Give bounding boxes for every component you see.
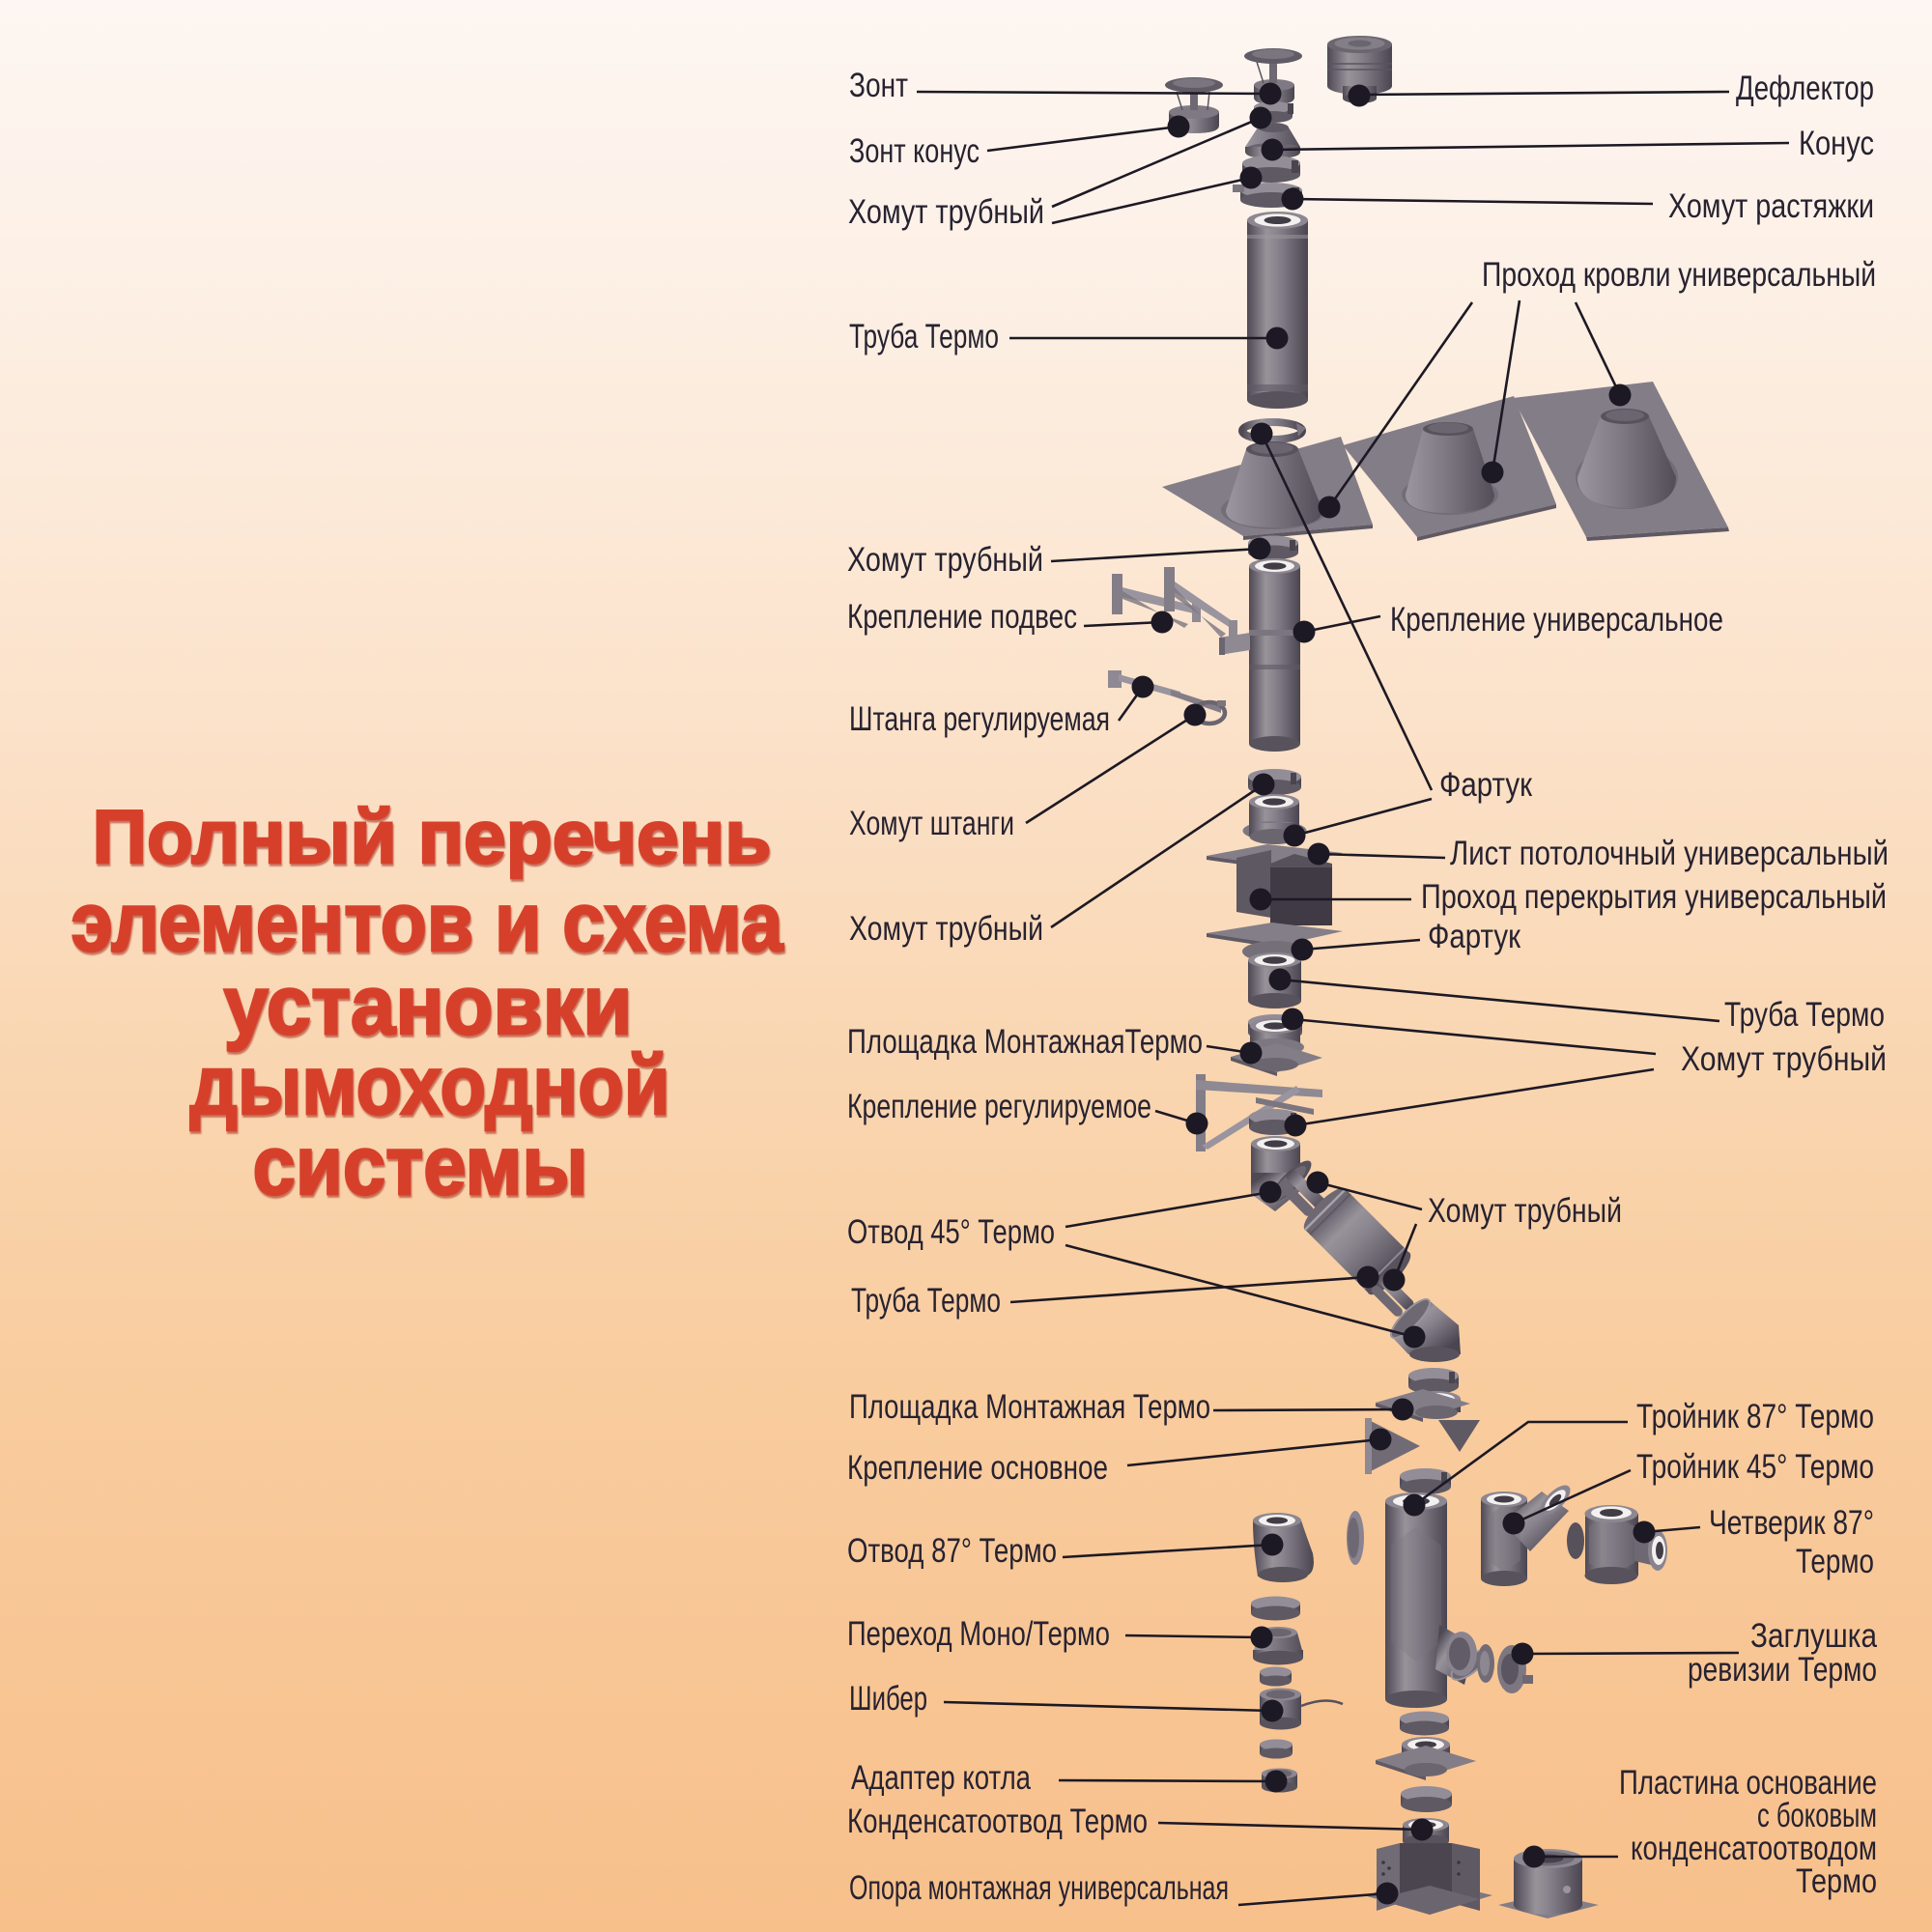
svg-text:Площадка Монтажная Термо: Площадка Монтажная Термо: [849, 1388, 1210, 1426]
svg-text:Лист потолочный универсальный: Лист потолочный универсальный: [1450, 835, 1889, 872]
svg-text:Фартук: Фартук: [1428, 918, 1521, 955]
svg-text:Хомут трубный: Хомут трубный: [1681, 1040, 1887, 1078]
svg-text:Проход перекрытия универсальны: Проход перекрытия универсальный: [1421, 878, 1887, 916]
svg-text:дымоходной: дымоходной: [190, 1039, 670, 1132]
svg-text:Отвод 45° Термо: Отвод 45° Термо: [847, 1213, 1055, 1251]
svg-text:Труба Термо: Труба Термо: [1724, 996, 1885, 1034]
svg-text:Площадка МонтажнаяТермо: Площадка МонтажнаяТермо: [847, 1023, 1203, 1061]
svg-text:Зонт конус: Зонт конус: [849, 132, 980, 170]
svg-text:установки: установки: [224, 959, 633, 1052]
svg-text:Отвод 87° Термо: Отвод 87° Термо: [847, 1532, 1057, 1570]
svg-text:Адаптер котла: Адаптер котла: [851, 1759, 1031, 1797]
svg-text:Опора монтажная универсальная: Опора монтажная универсальная: [849, 1869, 1229, 1907]
svg-text:ревизии Термо: ревизии Термо: [1688, 1651, 1877, 1689]
svg-text:Термо: Термо: [1796, 1543, 1874, 1580]
svg-text:Хомут трубный: Хомут трубный: [849, 910, 1043, 948]
svg-text:Переход Моно/Термо: Переход Моно/Термо: [847, 1615, 1110, 1653]
svg-text:Термо: Термо: [1796, 1862, 1877, 1900]
svg-text:Хомут штанги: Хомут штанги: [849, 805, 1014, 842]
svg-text:Хомут трубный: Хомут трубный: [1428, 1192, 1622, 1230]
svg-text:Крепление основное: Крепление основное: [847, 1449, 1108, 1487]
svg-text:Труба Термо: Труба Термо: [851, 1282, 1001, 1320]
svg-text:Конденсатоотвод Термо: Конденсатоотвод Термо: [847, 1803, 1148, 1840]
svg-text:системы: системы: [253, 1120, 588, 1212]
svg-text:Полный перечень: Полный перечень: [93, 794, 772, 879]
svg-text:Зонт: Зонт: [849, 67, 908, 104]
svg-text:Тройник 87° Термо: Тройник 87° Термо: [1636, 1398, 1874, 1435]
svg-text:Заглушка: Заглушка: [1750, 1617, 1877, 1655]
svg-text:Фартук: Фартук: [1439, 766, 1533, 804]
svg-text:Хомут трубный: Хомут трубный: [847, 541, 1043, 579]
svg-text:Проход кровли универсальный: Проход кровли универсальный: [1482, 256, 1876, 294]
svg-text:Хомут растяжки: Хомут растяжки: [1668, 187, 1874, 225]
svg-text:элементов и схема: элементов и схема: [71, 876, 784, 969]
svg-text:Хомут трубный: Хомут трубный: [848, 193, 1044, 231]
svg-text:Штанга регулируемая: Штанга регулируемая: [849, 700, 1110, 738]
svg-text:Конус: Конус: [1799, 125, 1874, 162]
svg-text:Крепление подвес: Крепление подвес: [847, 598, 1077, 636]
svg-text:Крепление регулируемое: Крепление регулируемое: [847, 1088, 1151, 1125]
svg-text:Крепление универсальное: Крепление универсальное: [1390, 601, 1723, 639]
svg-text:Тройник 45° Термо: Тройник 45° Термо: [1636, 1448, 1874, 1486]
svg-text:Четверик 87°: Четверик 87°: [1709, 1504, 1874, 1542]
svg-text:Дефлектор: Дефлектор: [1736, 70, 1874, 107]
svg-text:Шибер: Шибер: [849, 1680, 927, 1718]
svg-text:Труба Термо: Труба Термо: [849, 318, 999, 355]
